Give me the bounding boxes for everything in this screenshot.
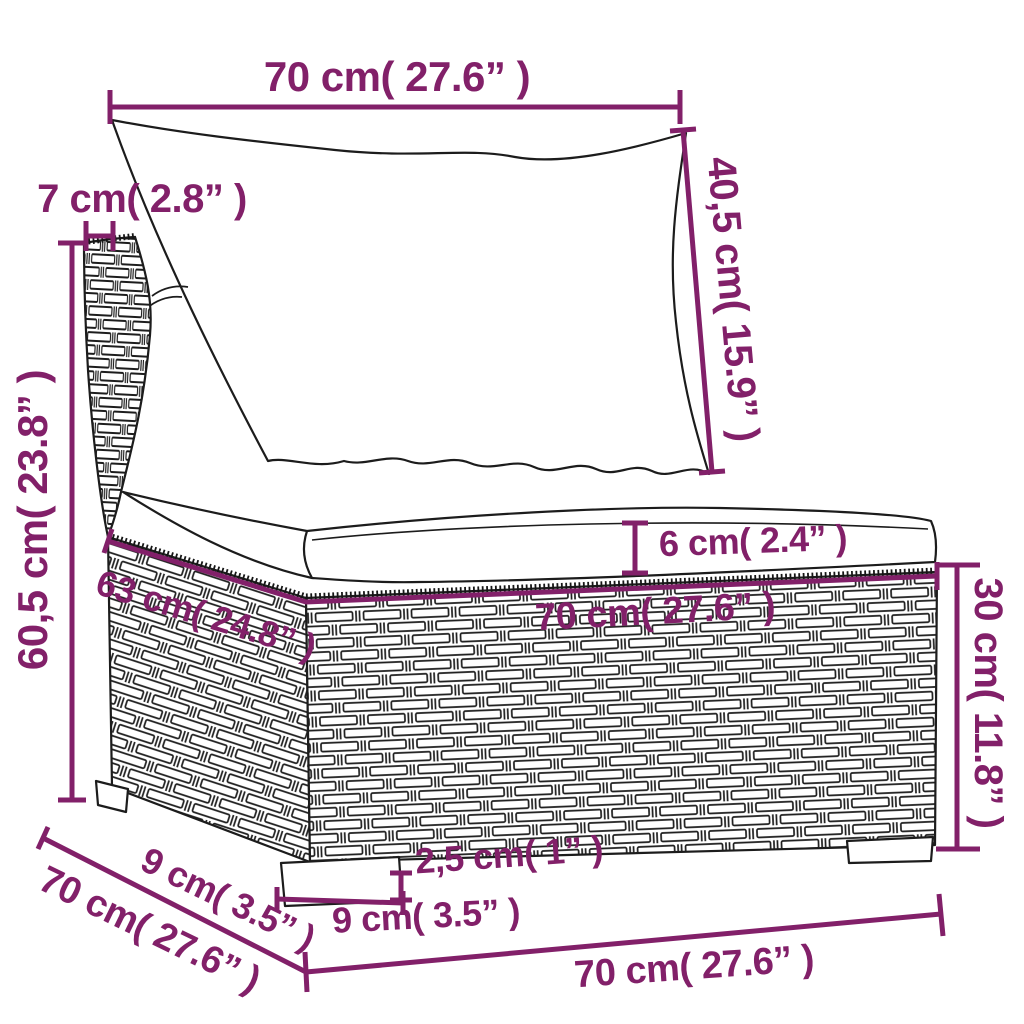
diagram-canvas: 70 cm( 27.6” ) 7 cm( 2.8” ) 60,5 cm( 23.…: [0, 0, 1024, 1024]
sofa-dimension-diagram: 70 cm( 27.6” ) 7 cm( 2.8” ) 60,5 cm( 23.…: [0, 0, 1024, 1024]
side-panel-wicker: [84, 236, 151, 537]
label-base-height: 30 cm( 11.8” ): [966, 578, 1010, 829]
back-pillow: [112, 120, 709, 474]
dim-total-height-line: [58, 243, 86, 800]
label-cushion-thickness: 6 cm( 2.4” ): [658, 517, 847, 565]
right-foot: [847, 837, 933, 863]
base-wicker: [108, 536, 937, 862]
label-backrest-height: 40,5 cm( 15.9” ): [699, 155, 768, 443]
label-total-height: 60,5 cm( 23.8” ): [9, 370, 56, 670]
label-back-panel-width: 7 cm( 2.8” ): [37, 177, 247, 221]
label-top-width: 70 cm( 27.6” ): [264, 53, 530, 100]
label-front-foot-width: 9 cm( 3.5” ): [331, 890, 521, 941]
